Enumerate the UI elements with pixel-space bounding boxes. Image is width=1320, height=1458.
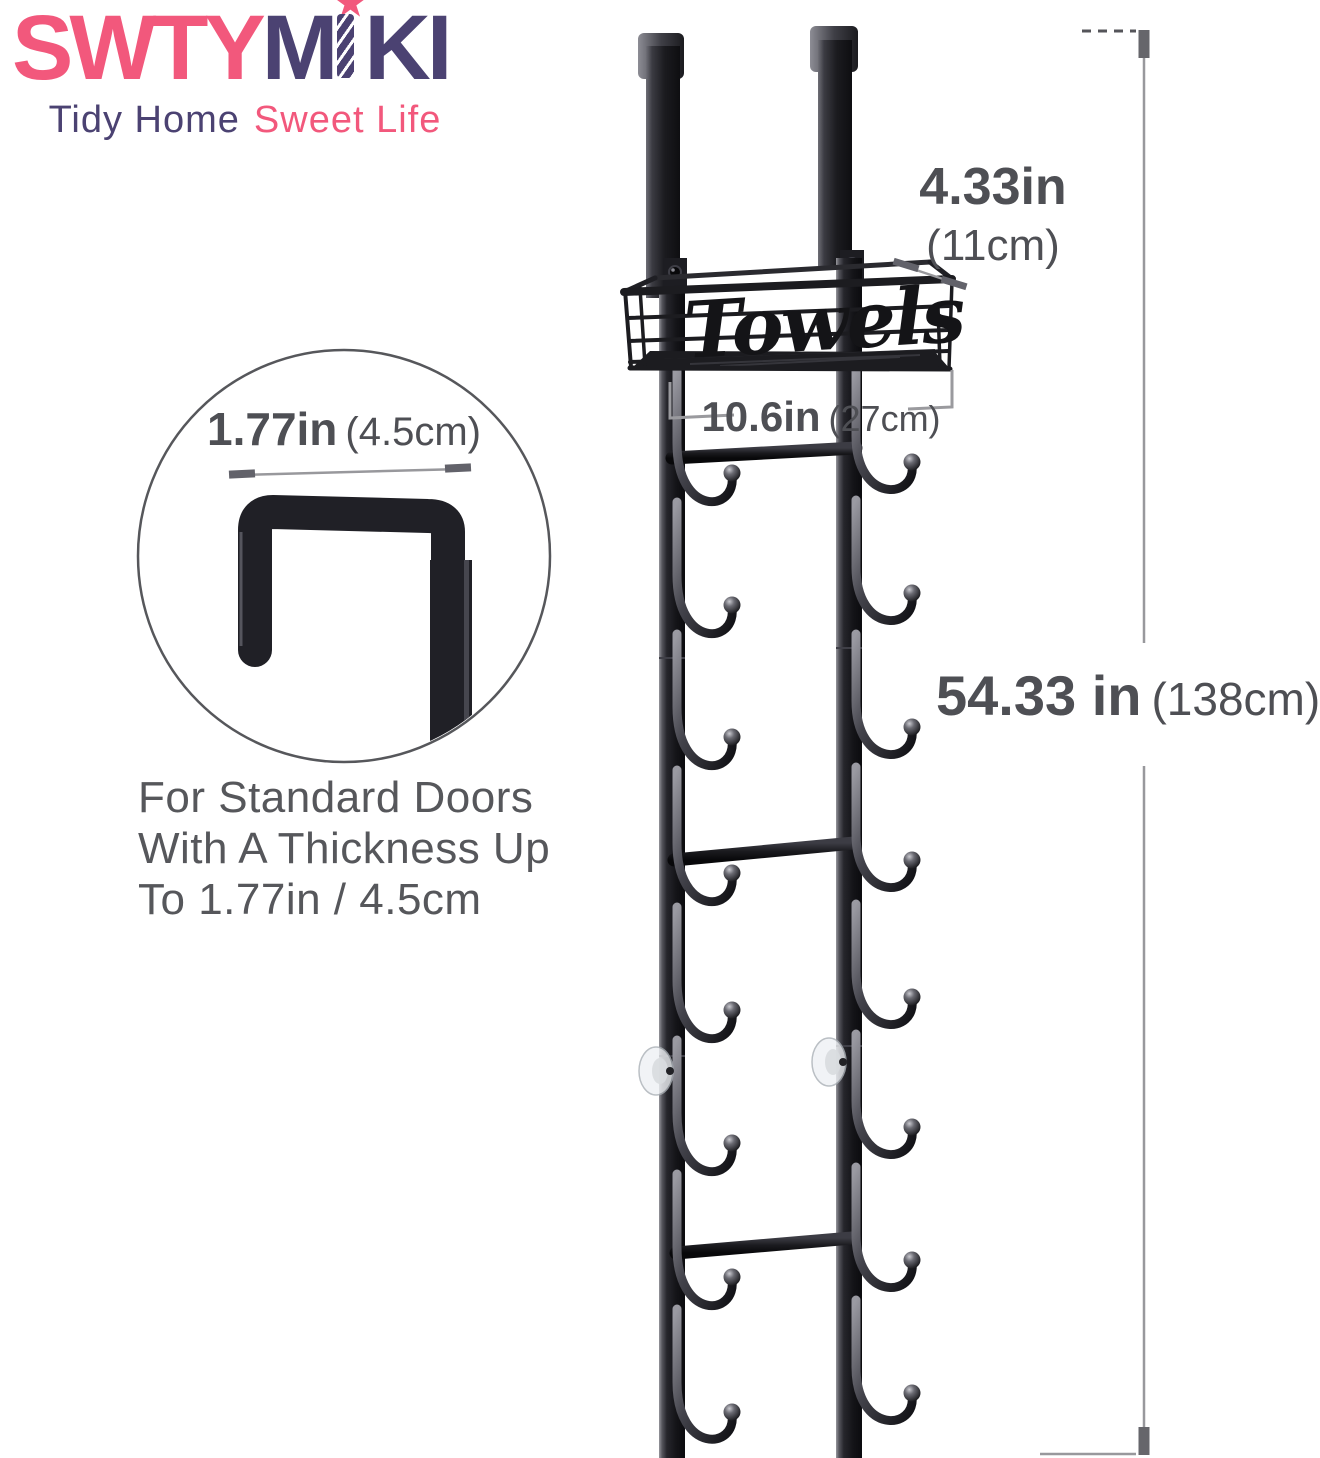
suction-cup-left bbox=[639, 1047, 674, 1095]
basket-label: Towels bbox=[682, 269, 968, 377]
total-height-value: 54.33 in bbox=[936, 664, 1141, 727]
product-illustration: Towels bbox=[0, 0, 1320, 1458]
tagline-tidy-home: Tidy Home bbox=[49, 99, 240, 141]
door-hook-bar-right bbox=[810, 26, 864, 280]
door-note-line3: To 1.77in / 4.5cm bbox=[138, 874, 588, 925]
basket-width-value: 10.6in bbox=[701, 393, 820, 440]
towel-hook-balls-left bbox=[724, 465, 741, 1421]
label-hook-clearance: 1.77in(4.5cm) bbox=[163, 402, 525, 456]
door-note-line1: For Standard Doors bbox=[138, 772, 588, 823]
basket-width-metric: (27cm) bbox=[829, 398, 941, 439]
door-hook-bar-left bbox=[638, 33, 687, 298]
label-basket-width: 10.6in(27cm) bbox=[671, 393, 971, 441]
logo-text-m: M bbox=[262, 0, 335, 99]
label-total-height: 54.33 in(138cm) bbox=[936, 663, 1320, 728]
logo-lighthouse-i: ★I bbox=[337, 13, 359, 79]
hook-clearance-value: 1.77in bbox=[207, 403, 337, 455]
brand-tagline: Tidy HomeSweet Life bbox=[10, 99, 480, 142]
towel-hooks-right bbox=[856, 369, 912, 1421]
logo-text-ki: KI bbox=[364, 0, 448, 99]
label-basket-depth: 4.33in (11cm) bbox=[893, 160, 1093, 271]
tagline-sweet-life: Sweet Life bbox=[254, 99, 441, 141]
hook-clearance-metric: (4.5cm) bbox=[345, 410, 481, 454]
product-infographic: Towels bbox=[0, 0, 1320, 1458]
door-thickness-note: For Standard Doors With A Thickness Up T… bbox=[138, 772, 588, 925]
brand-logo: SWTYM★IKI bbox=[12, 0, 448, 98]
suction-cup-right bbox=[812, 1038, 847, 1086]
basket-depth-metric: (11cm) bbox=[893, 221, 1093, 271]
logo-text-i: I bbox=[337, 14, 354, 78]
total-height-metric: (138cm) bbox=[1151, 673, 1320, 725]
towel-hook-balls-right bbox=[904, 454, 921, 1402]
door-note-line2: With A Thickness Up bbox=[138, 823, 588, 874]
basket-depth-value: 4.33in bbox=[893, 160, 1093, 215]
rack-crossbars bbox=[672, 448, 856, 1253]
logo-text-swty: SWTY bbox=[12, 0, 262, 99]
